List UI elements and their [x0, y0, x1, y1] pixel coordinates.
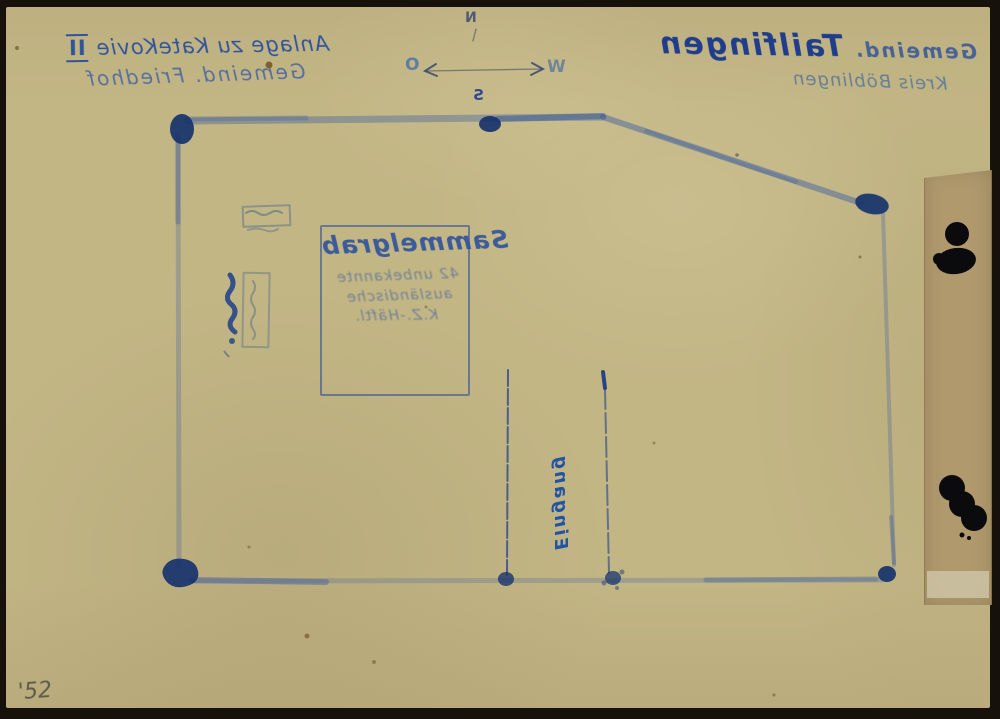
municipality-name: Tailfingen [658, 26, 844, 64]
compass-west-label: W [547, 57, 566, 77]
stamp-box-small [242, 204, 292, 228]
compass-east-label: O [405, 55, 419, 75]
header-municipality: Gemeind. Tailfingen [658, 26, 978, 67]
tape-strip [924, 170, 992, 605]
scanned-document: Gemeind. Tailfingen Kreis Böblingen Anla… [0, 0, 1000, 719]
compass-north-label: N [465, 10, 477, 26]
entrance-label: Eingang [549, 444, 571, 560]
header-district: Kreis Böblingen [792, 68, 948, 94]
municipality-prefix: Gemeind. [853, 38, 977, 64]
archive-number: '52 [17, 678, 53, 705]
compass-south-label: S [473, 86, 484, 104]
paper-sheet: Gemeind. Tailfingen Kreis Böblingen Anla… [6, 7, 990, 708]
ink-blobs [162, 114, 896, 590]
header-attachment: Anlage zu KateKovie II [66, 30, 330, 63]
header-cemetery: Gemeind. Friedhof [86, 59, 306, 91]
plot-outline [178, 116, 894, 582]
attachment-numeral: II [66, 34, 88, 62]
grave-box-title: Sammelgrab [321, 225, 509, 261]
attachment-text: Anlage zu KateKovie [95, 32, 329, 60]
cemetery-plan-drawing [6, 7, 1000, 719]
grave-box-line4: K.Z.-Häftl. [354, 307, 438, 324]
signature-scribble [224, 275, 235, 357]
stamp-box-vertical [241, 272, 270, 348]
compass-arrow-icon [425, 29, 543, 76]
